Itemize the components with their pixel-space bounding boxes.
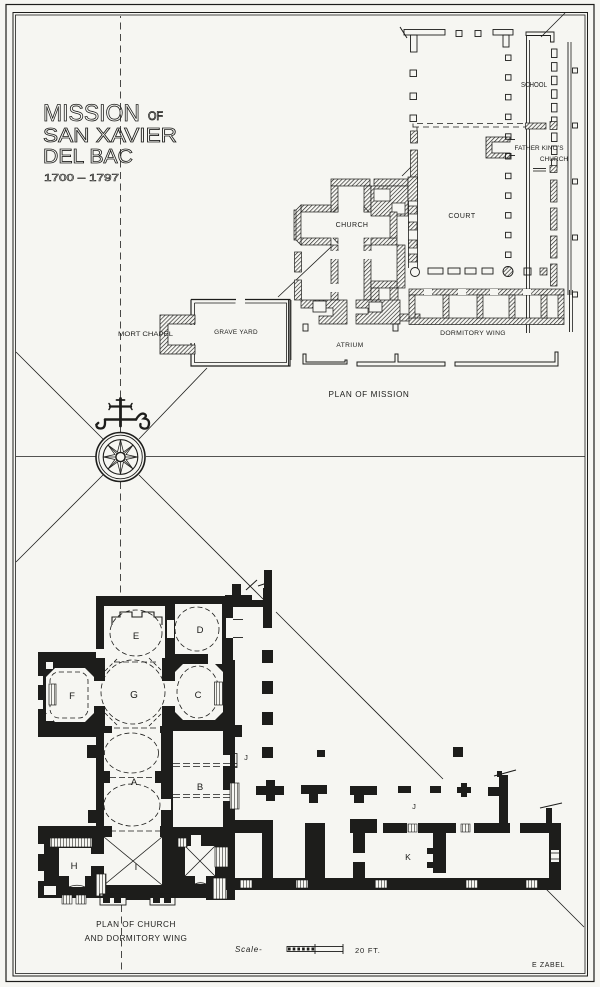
svg-text:B: B xyxy=(197,782,203,793)
svg-text:F: F xyxy=(69,691,75,702)
svg-text:SCHOOL: SCHOOL xyxy=(521,82,547,89)
svg-text:E: E xyxy=(133,631,139,642)
svg-text:A: A xyxy=(131,777,138,788)
svg-text:Scale-: Scale- xyxy=(235,945,262,954)
svg-text:AND DORMITORY WING: AND DORMITORY WING xyxy=(85,934,188,943)
svg-text:J: J xyxy=(412,802,416,811)
svg-text:OF: OF xyxy=(148,109,163,123)
svg-text:ATRIUM: ATRIUM xyxy=(336,342,363,349)
svg-text:DEL BAC: DEL BAC xyxy=(43,146,133,168)
svg-text:20 FT.: 20 FT. xyxy=(355,946,381,955)
svg-text:SAN XAVIER: SAN XAVIER xyxy=(43,125,177,147)
svg-text:PLAN OF MISSION: PLAN OF MISSION xyxy=(329,390,410,399)
svg-text:MORT CHAPEL: MORT CHAPEL xyxy=(118,331,173,338)
svg-text:1700 – 1797: 1700 – 1797 xyxy=(44,172,119,184)
svg-text:J: J xyxy=(244,753,248,762)
svg-text:D: D xyxy=(197,625,204,636)
svg-text:G: G xyxy=(130,690,138,701)
svg-text:FATHER KINO’S: FATHER KINO’S xyxy=(514,145,563,152)
svg-text:CHURCH: CHURCH xyxy=(336,222,369,229)
svg-text:GRAVE YARD: GRAVE YARD xyxy=(214,329,258,336)
svg-text:DORMITORY WING: DORMITORY WING xyxy=(440,330,506,337)
svg-text:E ZABEL: E ZABEL xyxy=(532,962,565,969)
svg-text:K: K xyxy=(405,852,411,862)
svg-text:CHURCH: CHURCH xyxy=(540,156,569,163)
svg-text:COURT: COURT xyxy=(448,213,475,220)
svg-text:C: C xyxy=(195,690,202,701)
svg-text:I: I xyxy=(135,862,138,873)
svg-text:H: H xyxy=(71,861,78,872)
svg-text:MISSION: MISSION xyxy=(43,100,140,127)
svg-text:PLAN OF CHURCH: PLAN OF CHURCH xyxy=(96,920,176,929)
